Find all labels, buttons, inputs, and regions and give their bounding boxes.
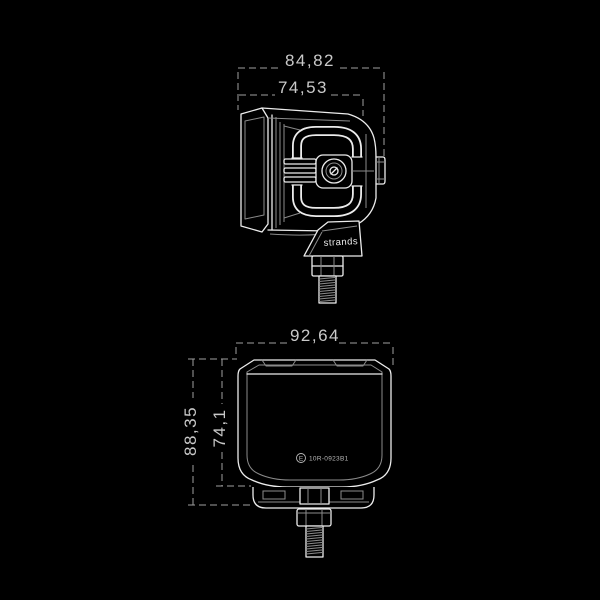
fin-bar-1 [284, 159, 316, 164]
dim-housing-height-text: 74,1 [210, 408, 229, 447]
fin-bar-3 [284, 177, 316, 182]
dim-overall-height-text: 88,35 [181, 406, 200, 456]
heatsink-left-edge [280, 122, 284, 225]
emark-letter: E [299, 456, 304, 463]
dim-housing-depth-text: 74,53 [278, 78, 328, 97]
rear-view: 92,64 88,35 74,1 E 10R-0923B1 [181, 326, 393, 557]
approval-number-text: 10R-0923B1 [309, 456, 349, 463]
side-view: 84,82 74,53 [238, 51, 385, 303]
pivot-bolt [316, 155, 374, 188]
connector-stub [376, 157, 385, 184]
fin-bar-2 [284, 168, 316, 173]
dim-overall-width-text: 92,64 [290, 326, 340, 345]
body-outline [238, 360, 391, 487]
dim-overall-depth-text: 84,82 [285, 51, 335, 70]
lamp-rear-body: E 10R-0923B1 [238, 360, 391, 557]
lamp-side-profile: strands [241, 108, 385, 303]
brand-logo-text: strands [323, 236, 358, 249]
drawing-stage: 84,82 74,53 [0, 0, 600, 600]
mounting-nut-rear [297, 509, 331, 526]
bracket-center-boss [300, 488, 329, 504]
technical-drawing-canvas: 84,82 74,53 [0, 0, 600, 600]
bracket-tab-right [341, 491, 363, 499]
housing-top-edge-inner [268, 118, 350, 121]
bracket-tab-left [263, 491, 285, 499]
